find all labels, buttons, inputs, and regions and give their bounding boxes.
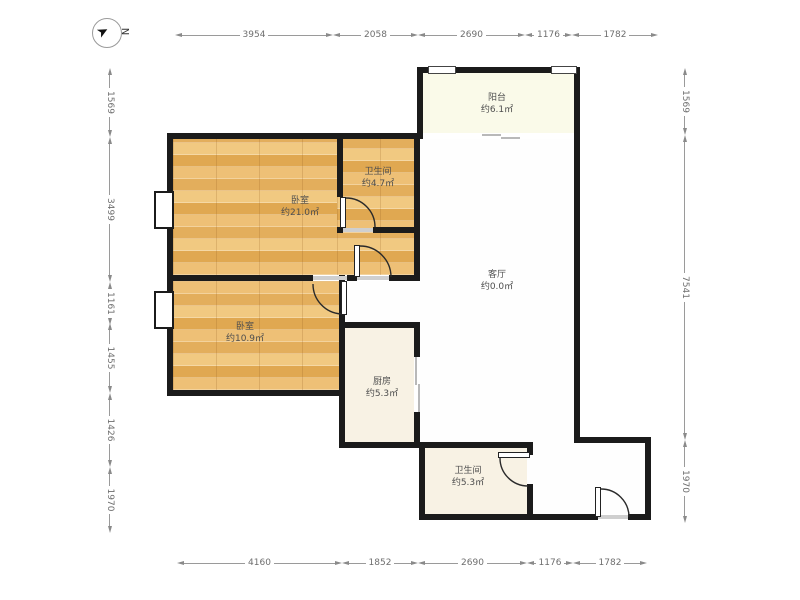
label-bedroom-main: 卧室约21.0㎡: [281, 195, 319, 219]
dim-bottom-5: 1782: [573, 557, 647, 569]
bathroom-lower-door-swing-icon: [500, 458, 528, 486]
dim-bottom-4: 1176: [527, 557, 573, 569]
dim-bottom-3: 2690: [418, 557, 527, 569]
label-bathroom-lower: 卫生间约5.3㎡: [452, 465, 484, 489]
label-kitchen: 厨房约5.3㎡: [366, 376, 398, 400]
dim-top-3: 2690: [418, 29, 525, 41]
dim-top-4: 1176: [525, 29, 572, 41]
compass-needle-icon: ➤: [94, 23, 111, 41]
dim-bottom-2: 1852: [342, 557, 418, 569]
entry-door-swing-icon: [601, 489, 629, 517]
north-compass-icon: ➤: [92, 18, 122, 48]
bathroom-upper-door-swing-icon: [346, 198, 375, 227]
label-balcony: 阳台约6.1㎡: [481, 92, 513, 116]
label-bathroom-upper: 卫生间约4.7㎡: [362, 166, 394, 190]
dim-bottom-1: 4160: [177, 557, 342, 569]
label-bedroom-second: 卧室约10.9㎡: [226, 321, 264, 345]
hallway-door-swing-icon: [360, 246, 391, 277]
dim-top-5: 1782: [572, 29, 658, 41]
dim-top-1: 3954: [175, 29, 333, 41]
floor-plan: 阳台约6.1㎡ 卫生间约4.7㎡ 卧室约21.0㎡ 客厅约0.0㎡ 卧室约10.…: [0, 0, 800, 600]
label-living-room: 客厅约0.0㎡: [481, 269, 513, 293]
bedroom-second-door-swing-icon: [313, 284, 341, 314]
compass-north-label: N: [119, 28, 130, 35]
dim-top-2: 2058: [333, 29, 418, 41]
